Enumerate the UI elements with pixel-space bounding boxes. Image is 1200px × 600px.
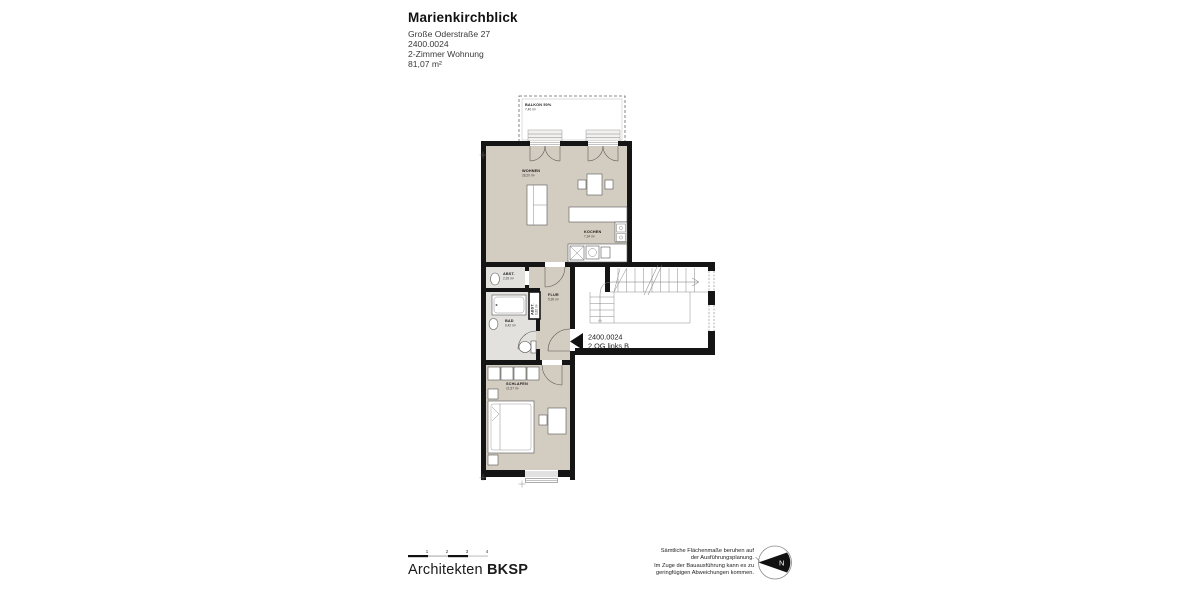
area-flur: 5,99 m² bbox=[548, 298, 559, 302]
abst-fixtures bbox=[491, 273, 500, 285]
unit-id-line: 2400.0024 bbox=[408, 39, 518, 49]
schlafen-window bbox=[525, 470, 558, 483]
firm-abbr-text: BKSP bbox=[487, 562, 528, 578]
disclaimer: Sämtliche Flächenmaße beruhen auf der Au… bbox=[636, 548, 754, 577]
firm-name: Architekten BKSP bbox=[408, 562, 528, 578]
apartment-type-line: 2-Zimmer Wohnung bbox=[408, 49, 518, 59]
scale-tick-2: 2 bbox=[446, 549, 449, 554]
address-line: Große Oderstraße 27 bbox=[408, 29, 518, 39]
total-area-line: 81,07 m² bbox=[408, 59, 518, 69]
label-abst: ABST. bbox=[503, 272, 515, 276]
page-title: Marienkirchblick bbox=[408, 10, 518, 25]
unit-arrow-icon bbox=[570, 333, 583, 350]
area-balkon: 7,40 m² bbox=[525, 108, 536, 112]
scale-tick-1: 1 bbox=[426, 549, 429, 554]
area-wohnen: 28,20 m² bbox=[522, 174, 535, 178]
scale-bar-drawing: 1 2 3 4 bbox=[408, 548, 498, 560]
area-schlafen: 21,57 m² bbox=[506, 387, 519, 391]
disclaimer-line: Sämtliche Flächenmaße beruhen auf bbox=[636, 548, 754, 555]
unit-label: 2400.0024 2.OG links B bbox=[570, 333, 629, 351]
label-balkon: BALKON 50% bbox=[525, 103, 552, 107]
title-block: Marienkirchblick Große Oderstraße 27 240… bbox=[408, 10, 518, 69]
unit-label-line1: 2400.0024 bbox=[588, 333, 623, 342]
label-flur: FLUR bbox=[548, 293, 559, 297]
unit-label-line2: 2.OG links B bbox=[588, 342, 629, 351]
firm-name-text: Architekten bbox=[408, 562, 483, 578]
label-wohnen: WOHNEN bbox=[522, 169, 540, 173]
area-abst2: 0,82 m² bbox=[535, 304, 539, 315]
north-label: N bbox=[779, 559, 784, 568]
disclaimer-line: der Ausführungsplanung. bbox=[636, 555, 754, 562]
floor-plan: 2400.0024 2.OG links B BALKON 50% 7,40 m… bbox=[478, 83, 723, 488]
disclaimer-line: geringfügigen Abweichungen kommen. bbox=[636, 570, 754, 577]
north-arrow: N bbox=[755, 543, 795, 588]
label-bad: BAD bbox=[505, 319, 514, 323]
north-arrow-icon: N bbox=[755, 543, 795, 583]
area-kochen: 7,34 m² bbox=[584, 235, 595, 239]
label-kochen: KOCHEN bbox=[584, 230, 601, 234]
scale-tick-3: 3 bbox=[466, 549, 469, 554]
floor-plan-drawing: 2400.0024 2.OG links B BALKON 50% 7,40 m… bbox=[478, 83, 723, 488]
scale-tick-4: 4 bbox=[486, 549, 489, 554]
area-abst: 2,93 m² bbox=[503, 277, 514, 281]
label-schlafen: SCHLAFEN bbox=[506, 382, 528, 386]
area-bad: 6,42 m² bbox=[505, 324, 516, 328]
disclaimer-line: Im Zuge der Bauausführung kann es zu bbox=[636, 563, 754, 570]
